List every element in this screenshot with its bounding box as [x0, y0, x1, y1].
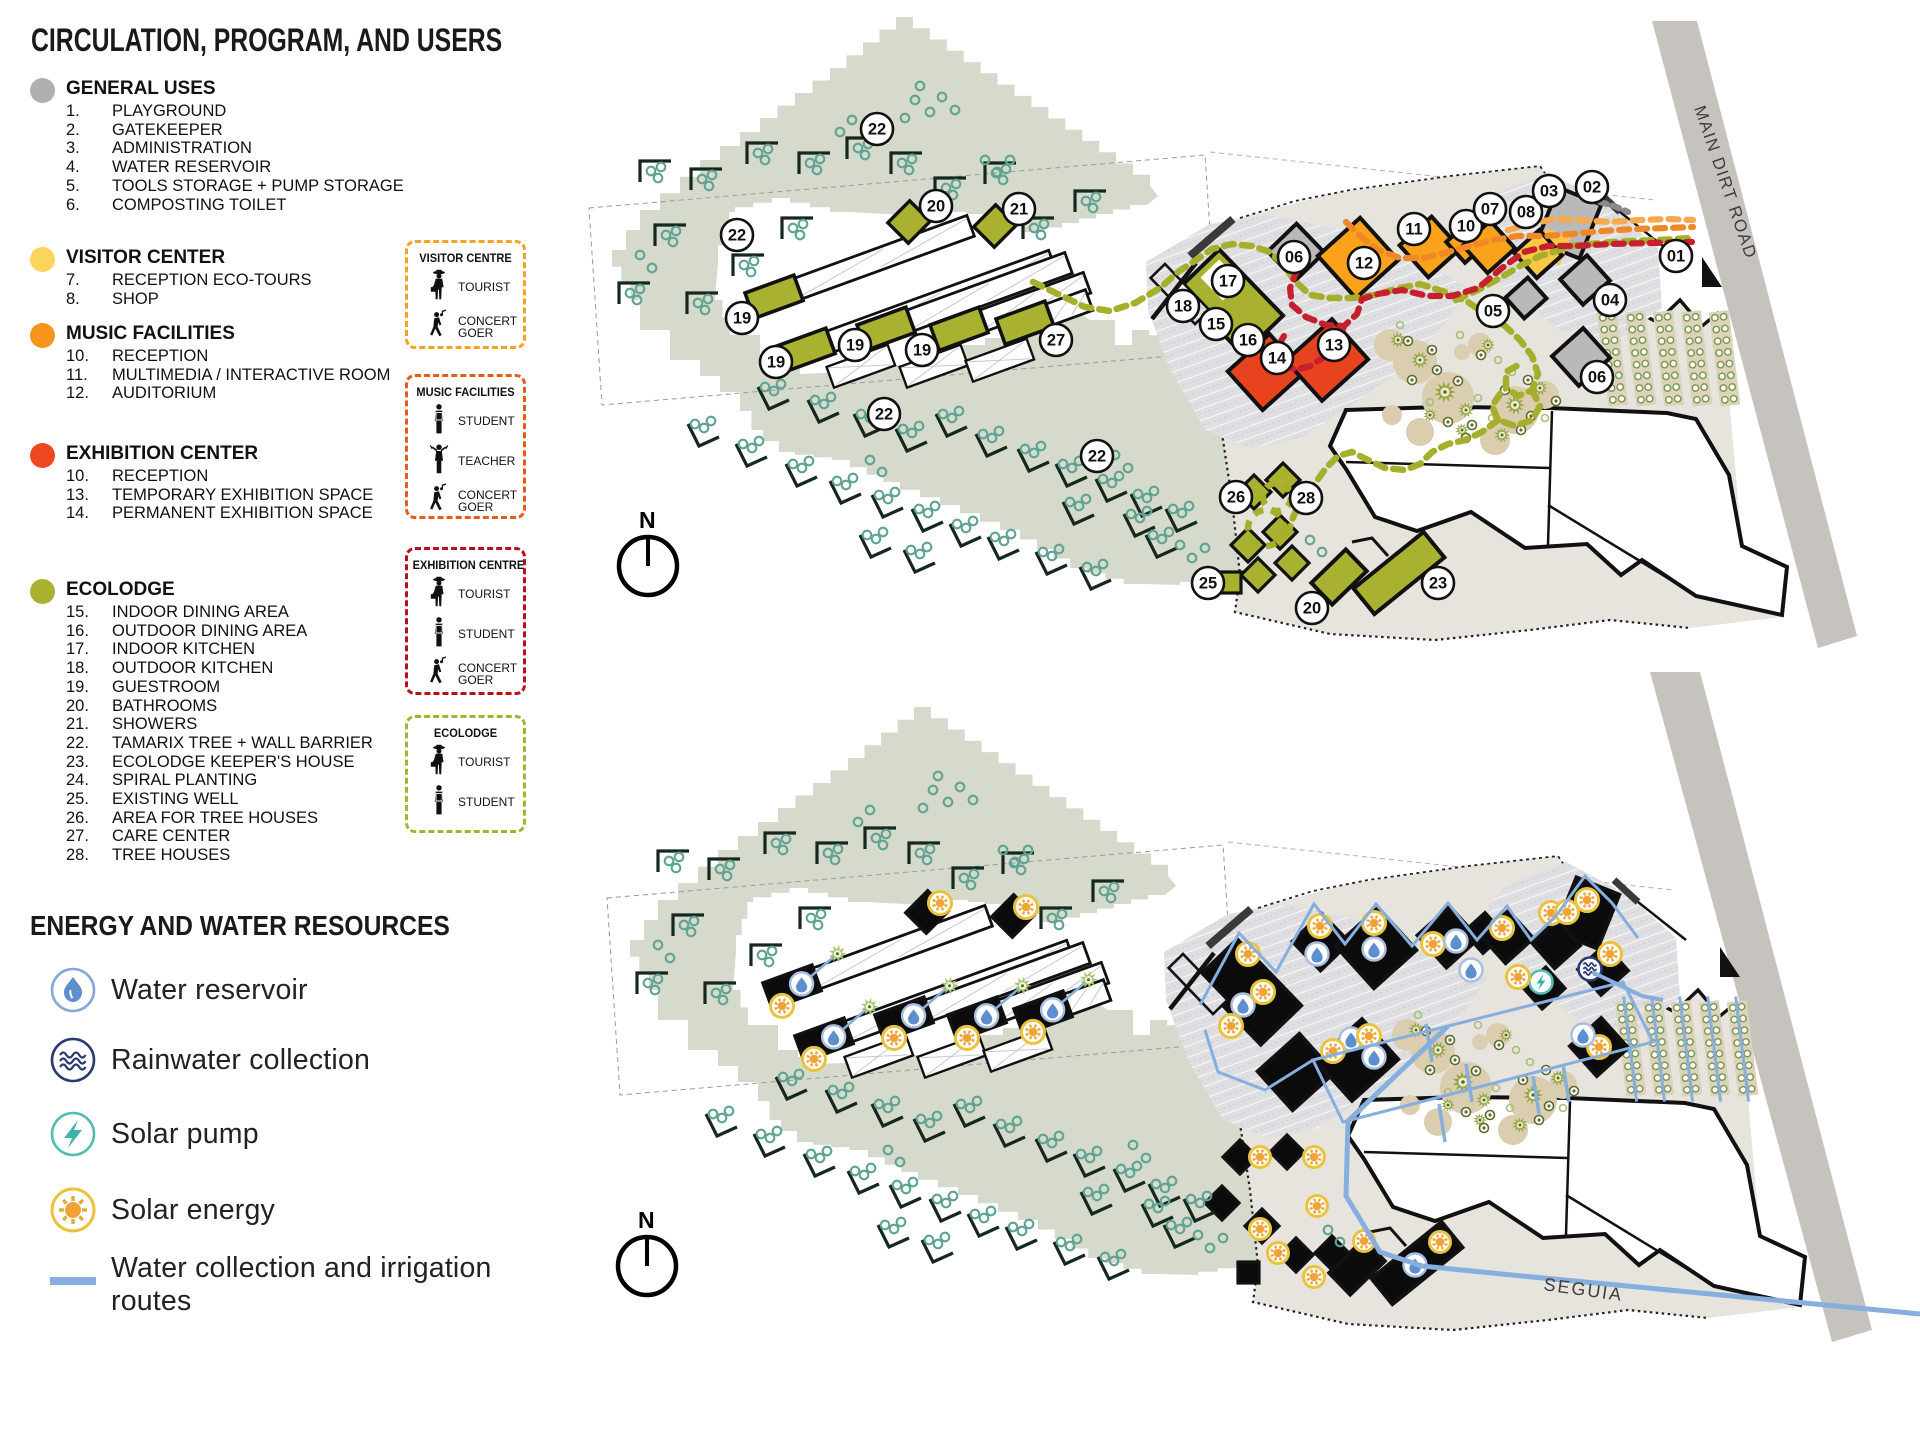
- svg-text:23: 23: [1429, 575, 1447, 593]
- svg-text:03: 03: [1540, 183, 1558, 201]
- svg-text:21: 21: [1010, 201, 1028, 219]
- svg-text:26: 26: [1227, 489, 1245, 507]
- svg-text:22: 22: [1088, 448, 1106, 466]
- svg-text:19: 19: [846, 337, 864, 355]
- svg-text:28: 28: [1297, 490, 1315, 508]
- svg-text:N: N: [639, 507, 656, 533]
- svg-text:02: 02: [1583, 179, 1601, 197]
- svg-text:07: 07: [1481, 201, 1499, 219]
- svg-text:14: 14: [1268, 350, 1287, 368]
- svg-text:18: 18: [1174, 298, 1192, 316]
- svg-text:13: 13: [1325, 337, 1343, 355]
- svg-text:15: 15: [1207, 316, 1225, 334]
- svg-text:20: 20: [1303, 600, 1321, 618]
- svg-text:06: 06: [1588, 369, 1606, 387]
- svg-text:08: 08: [1517, 204, 1535, 222]
- svg-text:10: 10: [1457, 218, 1475, 236]
- svg-text:25: 25: [1199, 575, 1217, 593]
- svg-text:20: 20: [927, 198, 945, 216]
- svg-text:04: 04: [1601, 292, 1620, 310]
- svg-text:12: 12: [1355, 255, 1373, 273]
- svg-text:05: 05: [1484, 303, 1502, 321]
- svg-text:27: 27: [1047, 332, 1065, 350]
- svg-text:01: 01: [1667, 248, 1685, 266]
- svg-text:06: 06: [1285, 249, 1303, 267]
- svg-text:22: 22: [868, 121, 886, 139]
- svg-text:19: 19: [913, 342, 931, 360]
- svg-text:16: 16: [1239, 332, 1257, 350]
- svg-text:N: N: [638, 1207, 655, 1233]
- svg-text:19: 19: [733, 310, 751, 328]
- svg-text:22: 22: [875, 406, 893, 424]
- svg-text:22: 22: [728, 227, 746, 245]
- svg-text:17: 17: [1219, 273, 1237, 291]
- svg-text:19: 19: [767, 354, 785, 372]
- svg-text:11: 11: [1405, 221, 1422, 239]
